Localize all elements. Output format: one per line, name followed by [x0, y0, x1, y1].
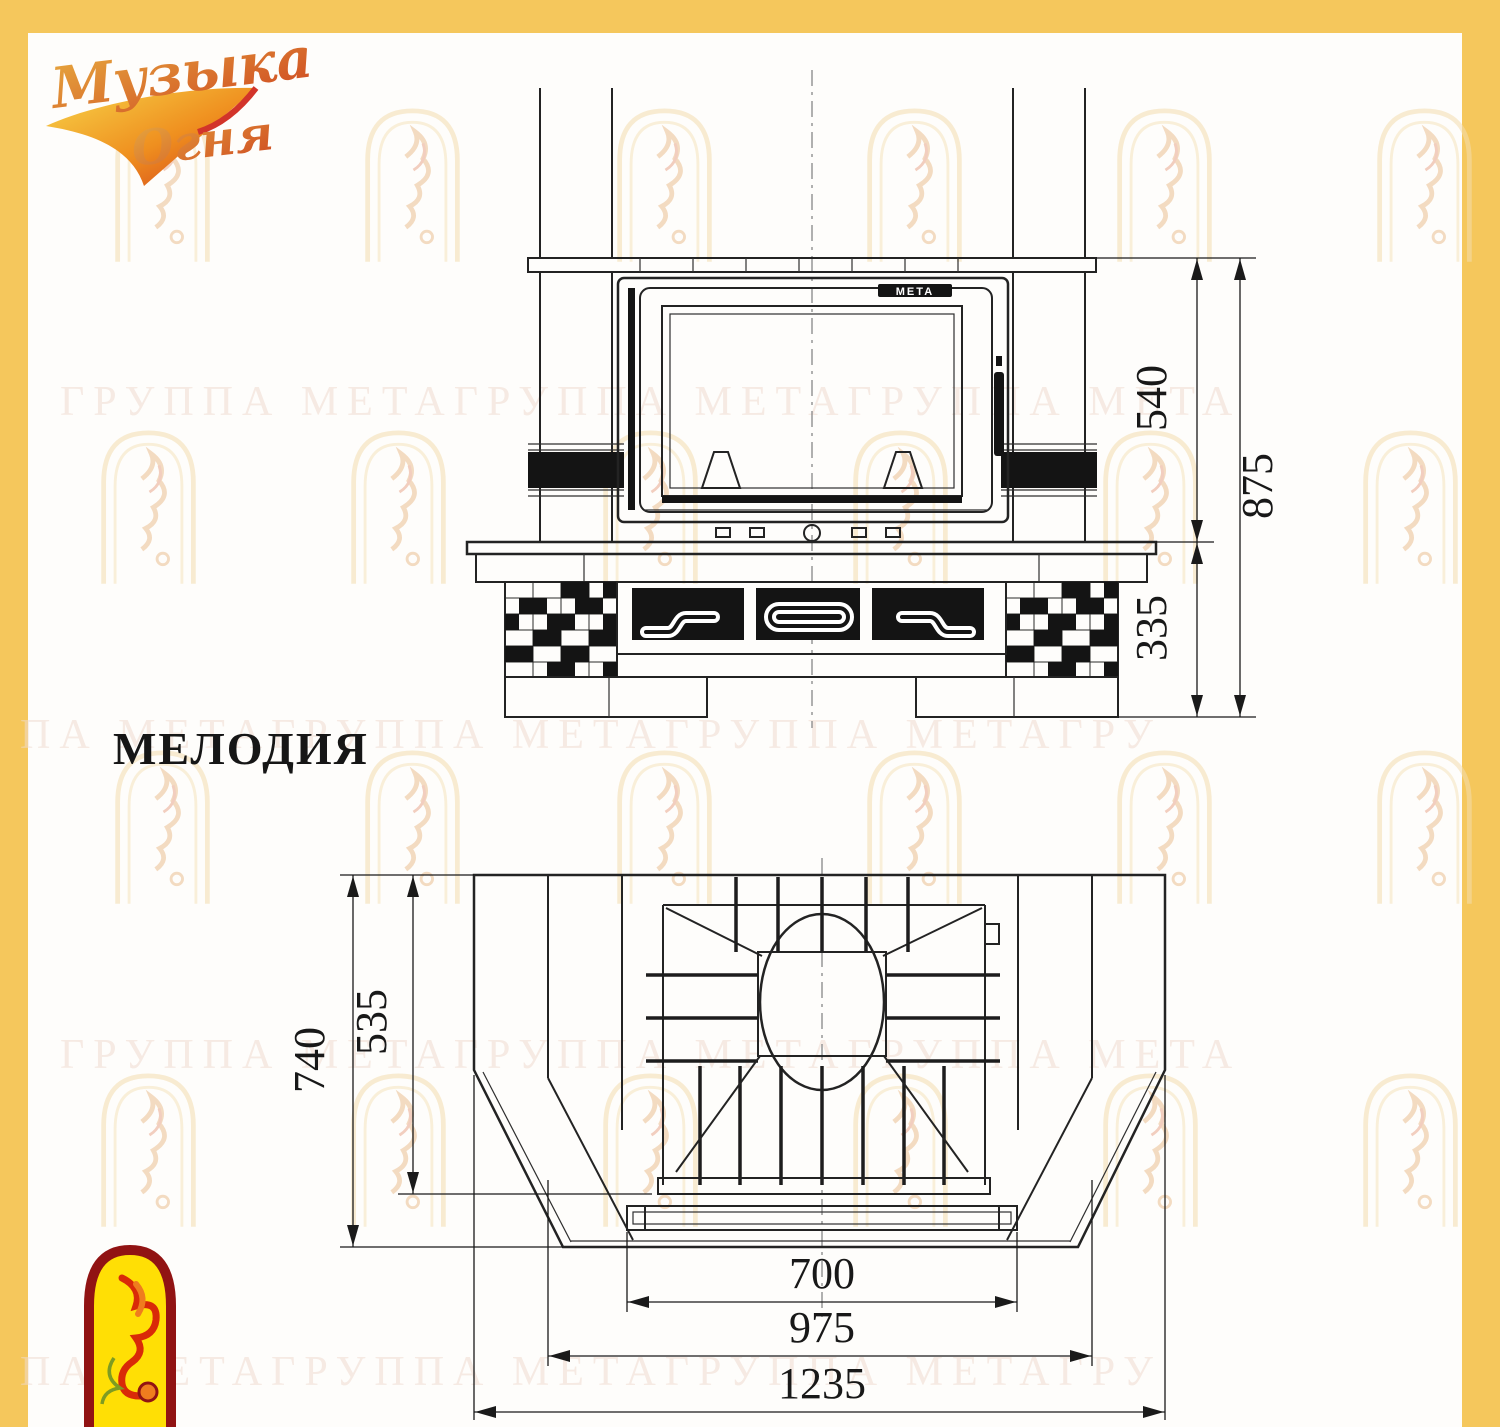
left-andiron — [702, 452, 740, 488]
dim-label-740: 740 — [285, 1027, 334, 1093]
left-brick-pillar — [505, 582, 617, 677]
door-hinge-band — [628, 288, 635, 510]
dim-label-535: 535 — [347, 989, 396, 1055]
top-view-dimensions: 740 535 700 — [285, 875, 1165, 1420]
left-foot — [505, 677, 707, 717]
technical-drawing-canvas: ГРУППА МЕТАГРУППА МЕТАГРУППА МЕТА ПА МЕТ… — [0, 0, 1500, 1427]
dimension-875: 875 — [1233, 258, 1282, 717]
emblem-sun — [139, 1383, 157, 1401]
dim-label-540: 540 — [1127, 365, 1176, 431]
dim-label-335: 335 — [1127, 595, 1176, 661]
right-brick-pillar — [1006, 582, 1118, 677]
side-nub — [985, 924, 999, 944]
front-view-dimensions: 540 335 875 — [1096, 258, 1282, 717]
dim-label-700: 700 — [789, 1249, 855, 1298]
watermark-text-row: ГРУППА МЕТАГРУППА МЕТАГРУППА МЕТА — [60, 1032, 1241, 1078]
right-vent-grille — [1001, 452, 1097, 488]
dim-label-975: 975 — [789, 1303, 855, 1352]
model-title: МЕЛОДИЯ — [113, 722, 369, 775]
watermark-text-row: ГРУППА МЕТАГРУППА МЕТАГРУППА МЕТА — [60, 379, 1241, 425]
left-vent-grille — [528, 452, 624, 488]
brand-logo: Музыка Огня — [46, 24, 316, 186]
dimension-335: 335 — [1127, 542, 1203, 717]
dim-label-1235: 1235 — [778, 1359, 866, 1408]
door-handle — [994, 372, 1004, 456]
corner-emblem — [89, 1250, 171, 1427]
door-sill — [662, 496, 962, 503]
firebox-front-plate — [658, 1178, 990, 1194]
right-foot — [916, 677, 1118, 717]
firebox-brand-label: МЕТА — [896, 286, 934, 298]
door-vent-row — [716, 525, 900, 541]
firebox-brand-plate: МЕТА — [878, 284, 952, 298]
catalog-page: ГРУППА МЕТАГРУППА МЕТАГРУППА МЕТА ПА МЕТ… — [0, 0, 1500, 1427]
dim-label-875: 875 — [1233, 453, 1282, 519]
top-view: 740 535 700 — [285, 858, 1165, 1420]
